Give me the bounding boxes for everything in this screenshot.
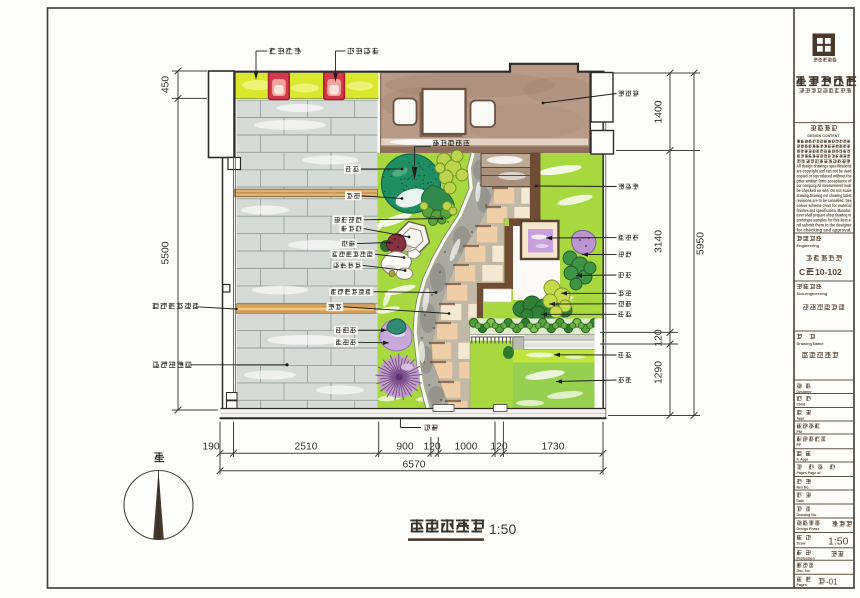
svg-text:Engineering: Engineering bbox=[797, 243, 820, 248]
svg-text:Drawing No.: Drawing No. bbox=[797, 513, 817, 517]
svg-text:120: 120 bbox=[490, 442, 507, 453]
svg-text:Sub-engineering: Sub-engineering bbox=[797, 291, 828, 296]
svg-text:Pages: Pages bbox=[797, 583, 807, 587]
svg-text:Designer: Designer bbox=[797, 390, 813, 394]
svg-text:Profession: Profession bbox=[797, 557, 815, 561]
svg-text:PP: PP bbox=[797, 443, 802, 447]
svg-text:1400: 1400 bbox=[654, 100, 665, 123]
svg-text:Chkd: Chkd bbox=[797, 402, 806, 406]
svg-text:Scale: Scale bbox=[797, 541, 806, 545]
svg-text:Rev No.: Rev No. bbox=[797, 485, 810, 489]
svg-text:190: 190 bbox=[202, 442, 219, 453]
svg-text:1:50: 1:50 bbox=[489, 521, 516, 537]
svg-text:F. Appr: F. Appr bbox=[797, 458, 809, 462]
svg-text:Doc. No.: Doc. No. bbox=[797, 569, 811, 573]
svg-text:1000: 1000 bbox=[455, 442, 478, 453]
svg-text:450: 450 bbox=[161, 76, 172, 93]
svg-text:1730: 1730 bbox=[542, 442, 565, 453]
svg-text:120: 120 bbox=[423, 442, 440, 453]
svg-text:10-102: 10-102 bbox=[815, 267, 842, 277]
svg-text:2510: 2510 bbox=[295, 442, 318, 453]
svg-text:Drawing Name: Drawing Name bbox=[797, 341, 825, 346]
svg-text:for checking and approval.: for checking and approval. bbox=[797, 228, 852, 233]
svg-text:DESIGN CONTENT: DESIGN CONTENT bbox=[807, 134, 840, 138]
svg-text:5500: 5500 bbox=[161, 241, 172, 264]
svg-text:120: 120 bbox=[654, 329, 665, 346]
svg-text:PM: PM bbox=[797, 430, 802, 434]
svg-text:C: C bbox=[799, 267, 805, 277]
svg-text:5950: 5950 bbox=[696, 232, 707, 255]
svg-text:Date: Date bbox=[797, 499, 805, 503]
svg-text:3140: 3140 bbox=[654, 230, 665, 253]
svg-text:-01: -01 bbox=[826, 578, 838, 587]
svg-text:Design Phase: Design Phase bbox=[797, 527, 820, 531]
svg-text:1290: 1290 bbox=[654, 361, 665, 384]
svg-text:Appr: Appr bbox=[797, 416, 806, 420]
svg-text:1:50: 1:50 bbox=[828, 536, 849, 548]
svg-text:Pages Page of: Pages Page of bbox=[797, 471, 822, 475]
svg-text:6570: 6570 bbox=[403, 460, 426, 471]
svg-text:900: 900 bbox=[396, 442, 413, 453]
